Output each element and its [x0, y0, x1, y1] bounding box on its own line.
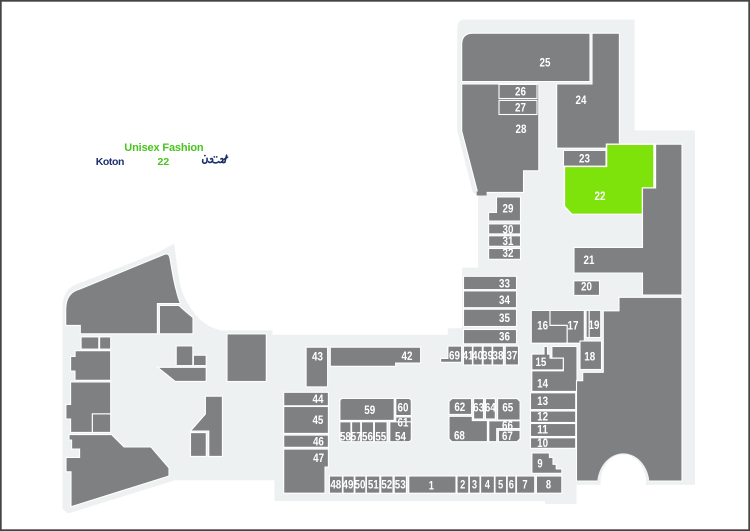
- svg-text:62: 62: [454, 400, 465, 414]
- svg-text:48: 48: [330, 478, 341, 492]
- svg-text:29: 29: [503, 202, 514, 216]
- svg-text:6: 6: [509, 478, 514, 492]
- svg-text:13: 13: [537, 394, 548, 408]
- svg-text:27: 27: [515, 100, 526, 114]
- svg-text:53: 53: [395, 478, 406, 492]
- svg-text:23: 23: [579, 151, 590, 165]
- svg-text:17: 17: [568, 318, 579, 332]
- svg-text:47: 47: [313, 451, 324, 465]
- svg-text:33: 33: [499, 276, 510, 290]
- svg-text:8: 8: [546, 478, 551, 492]
- svg-text:43: 43: [312, 349, 323, 363]
- svg-text:44: 44: [313, 392, 324, 406]
- svg-text:4: 4: [485, 478, 490, 492]
- svg-text:16: 16: [537, 318, 548, 332]
- svg-text:3: 3: [472, 478, 477, 492]
- svg-text:36: 36: [499, 329, 510, 343]
- svg-text:51: 51: [368, 478, 379, 492]
- svg-text:5: 5: [498, 478, 503, 492]
- svg-text:37: 37: [506, 349, 517, 363]
- svg-text:58: 58: [340, 429, 351, 443]
- svg-text:22: 22: [158, 156, 170, 168]
- svg-text:Unisex Fashion: Unisex Fashion: [124, 142, 204, 154]
- svg-text:22: 22: [595, 189, 606, 203]
- svg-text:65: 65: [502, 401, 513, 415]
- svg-text:52: 52: [381, 478, 392, 492]
- svg-text:12: 12: [537, 409, 548, 423]
- svg-text:25: 25: [540, 56, 551, 70]
- svg-text:19: 19: [589, 318, 600, 332]
- svg-text:67: 67: [502, 429, 513, 443]
- svg-text:21: 21: [584, 253, 595, 267]
- svg-text:15: 15: [535, 355, 546, 369]
- svg-text:14: 14: [537, 377, 548, 391]
- svg-text:18: 18: [584, 350, 595, 364]
- svg-text:61: 61: [398, 416, 409, 430]
- svg-text:2: 2: [460, 478, 465, 492]
- svg-text:56: 56: [362, 429, 373, 443]
- svg-text:54: 54: [395, 429, 406, 443]
- svg-text:38: 38: [493, 349, 504, 363]
- svg-text:10: 10: [537, 436, 548, 450]
- svg-text:11: 11: [537, 423, 548, 437]
- svg-text:20: 20: [581, 279, 592, 293]
- svg-text:39: 39: [482, 349, 493, 363]
- svg-text:59: 59: [364, 403, 375, 417]
- svg-text:45: 45: [312, 413, 323, 427]
- svg-text:64: 64: [485, 401, 496, 415]
- svg-text:Koton: Koton: [96, 156, 124, 168]
- svg-text:50: 50: [355, 478, 366, 492]
- svg-text:46: 46: [313, 434, 324, 448]
- svg-text:55: 55: [375, 429, 386, 443]
- svg-text:35: 35: [499, 311, 510, 325]
- svg-text:34: 34: [499, 293, 510, 307]
- svg-text:32: 32: [503, 246, 514, 260]
- svg-text:24: 24: [576, 93, 587, 107]
- svg-text:26: 26: [515, 84, 526, 98]
- svg-text:68: 68: [454, 429, 465, 443]
- svg-text:63: 63: [473, 401, 484, 415]
- svg-text:49: 49: [343, 478, 354, 492]
- svg-text:60: 60: [398, 401, 409, 415]
- svg-text:42: 42: [402, 349, 413, 363]
- svg-text:9: 9: [537, 457, 542, 471]
- svg-text:7: 7: [522, 478, 527, 492]
- svg-text:1: 1: [429, 479, 434, 493]
- svg-text:28: 28: [516, 122, 527, 136]
- svg-text:57: 57: [351, 429, 362, 443]
- svg-text:69: 69: [449, 349, 460, 363]
